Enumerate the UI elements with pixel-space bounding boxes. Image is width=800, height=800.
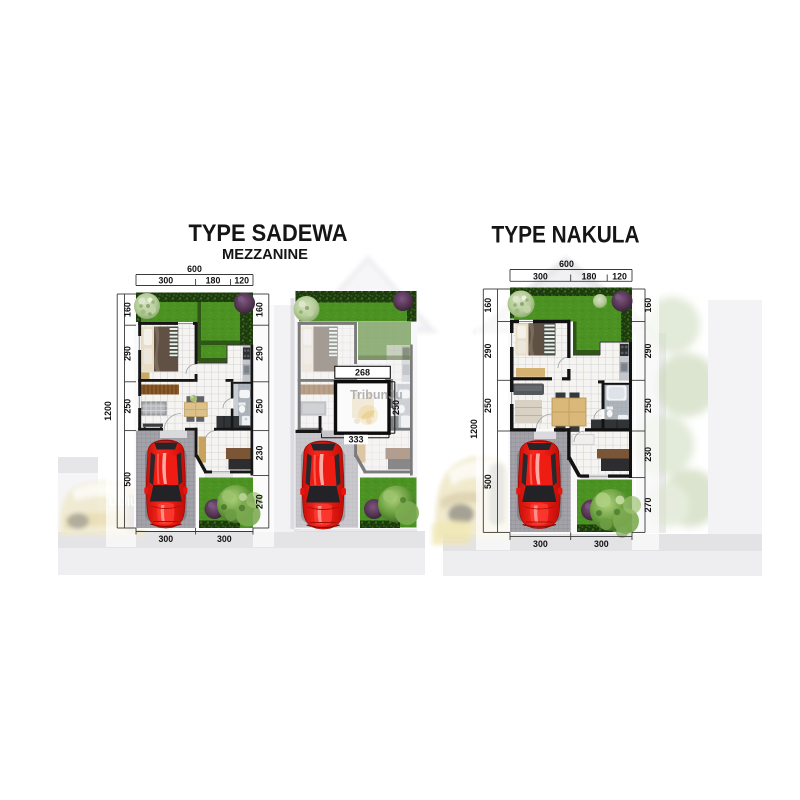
svg-text:290: 290 [483, 343, 493, 358]
svg-text:268: 268 [355, 367, 370, 377]
svg-text:180: 180 [206, 276, 221, 286]
svg-text:160: 160 [483, 298, 493, 313]
svg-text:120: 120 [612, 271, 627, 281]
svg-text:600: 600 [187, 264, 202, 274]
svg-text:1200: 1200 [103, 401, 113, 421]
svg-text:270: 270 [643, 498, 653, 513]
svg-text:160: 160 [123, 302, 133, 317]
svg-text:300: 300 [158, 276, 173, 286]
svg-text:290: 290 [643, 343, 653, 358]
svg-text:500: 500 [483, 474, 493, 489]
svg-text:TYPE NAKULA: TYPE NAKULA [492, 222, 640, 249]
svg-text:230: 230 [643, 447, 653, 462]
svg-text:333: 333 [348, 435, 363, 445]
svg-text:600: 600 [559, 259, 574, 269]
svg-text:300: 300 [533, 539, 548, 549]
svg-text:250: 250 [123, 399, 133, 414]
svg-text:120: 120 [234, 276, 249, 286]
svg-text:250: 250 [255, 399, 265, 414]
svg-text:250: 250 [483, 398, 493, 413]
svg-text:250: 250 [643, 398, 653, 413]
svg-text:270: 270 [255, 494, 265, 509]
svg-text:250: 250 [391, 400, 401, 415]
svg-text:300: 300 [217, 534, 232, 544]
svg-text:230: 230 [255, 446, 265, 461]
svg-text:TYPE SADEWA: TYPE SADEWA [189, 220, 348, 247]
svg-text:180: 180 [582, 271, 597, 281]
svg-text:290: 290 [255, 346, 265, 361]
svg-text:290: 290 [123, 346, 133, 361]
svg-text:300: 300 [533, 271, 548, 281]
svg-text:160: 160 [643, 298, 653, 313]
svg-text:160: 160 [255, 302, 265, 317]
svg-text:300: 300 [158, 534, 173, 544]
svg-text:300: 300 [594, 539, 609, 549]
svg-text:1200: 1200 [469, 419, 479, 439]
svg-text:MEZZANINE: MEZZANINE [222, 246, 308, 263]
svg-text:500: 500 [123, 472, 133, 487]
